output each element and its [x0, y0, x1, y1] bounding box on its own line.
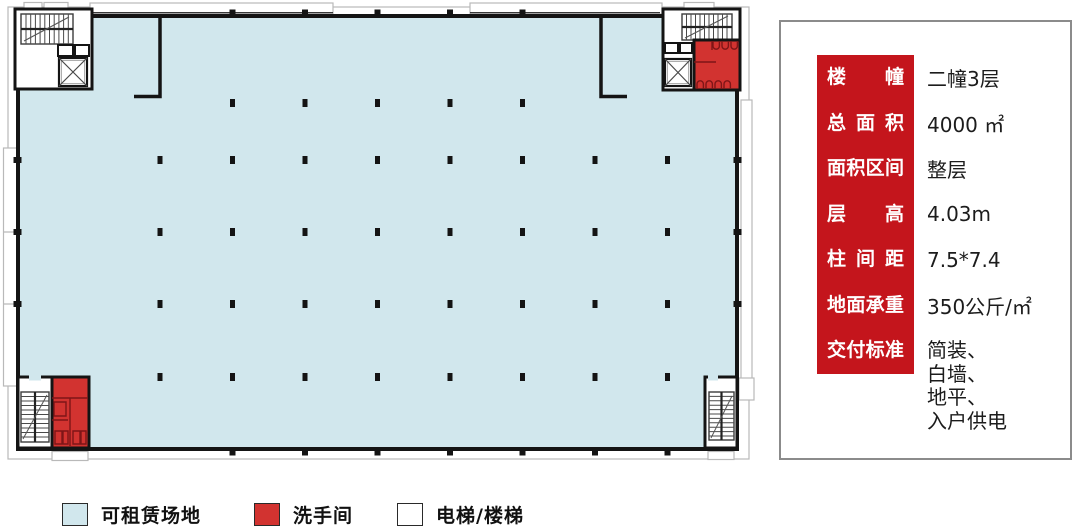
label-column-spacing: 柱间距	[817, 237, 914, 283]
info-panel: 楼幢 总面积 面积区间 层高 柱间距 地面承重 交付标准 二幢3层 4000 ㎡…	[779, 20, 1072, 460]
service-box	[58, 45, 73, 56]
legend-label: 可租赁场地	[101, 501, 201, 528]
value-delivery-standard: 简装、 白墙、 地平、 入户供电	[927, 328, 1067, 433]
elevator-top-left-icon	[59, 58, 87, 86]
restroom-top-right	[694, 40, 740, 90]
elevator-top-right-icon	[665, 59, 691, 86]
label-delivery-standard: 交付标准	[817, 328, 914, 374]
value-column-spacing: 7.5*7.4	[927, 237, 1067, 283]
door-gap	[708, 374, 718, 381]
core-bottom-right	[705, 374, 737, 449]
bottom-left-ledge	[52, 452, 88, 461]
label-area-range: 面积区间	[817, 146, 914, 192]
label-building: 楼幢	[817, 55, 914, 101]
info-panel-label-column: 楼幢 总面积 面积区间 层高 柱间距 地面承重 交付标准	[817, 55, 914, 374]
staircase-bottom-left-icon	[21, 392, 49, 442]
restroom-swatch	[254, 503, 280, 526]
staircase-top-right-icon	[682, 14, 732, 40]
legend-label: 洗手间	[293, 501, 353, 528]
legend-label: 电梯/楼梯	[436, 501, 524, 528]
restroom-bottom-left	[52, 377, 89, 448]
legend-item-restroom: 洗手间	[254, 500, 353, 528]
service-box	[75, 45, 89, 56]
value-floor-load: 350公斤/㎡	[927, 283, 1067, 329]
right-lower-ledge	[739, 378, 754, 400]
info-panel-value-column: 二幢3层 4000 ㎡ 整层 4.03m 7.5*7.4 350公斤/㎡ 简装、…	[927, 55, 1067, 433]
value-total-area: 4000 ㎡	[927, 101, 1067, 147]
left-balcony-band	[4, 148, 18, 386]
legend-item-rentable: 可租赁场地	[62, 500, 201, 528]
label-floor-height: 层高	[817, 192, 914, 238]
core-bottom-left	[18, 374, 89, 449]
value-building: 二幢3层	[927, 55, 1067, 101]
page: 可租赁场地 洗手间 电梯/楼梯 楼幢 总面积 面积区间 层高 柱间距 地面承重 …	[0, 0, 1080, 529]
right-balcony-band	[741, 100, 752, 380]
service-box	[680, 43, 692, 53]
floor-plan	[0, 0, 760, 480]
value-area-range: 整层	[927, 146, 1067, 192]
service-box	[665, 43, 678, 53]
value-floor-height: 4.03m	[927, 192, 1067, 238]
door-gap	[29, 374, 41, 381]
staircase-top-left-icon	[21, 14, 73, 44]
elevator-stair-swatch	[397, 503, 423, 526]
rentable-area-swatch	[62, 503, 88, 526]
label-floor-load: 地面承重	[817, 283, 914, 329]
staircase-bottom-right-icon	[709, 392, 734, 440]
bottom-right-ledge	[708, 452, 734, 460]
label-total-area: 总面积	[817, 101, 914, 147]
legend-item-elevator-stair: 电梯/楼梯	[397, 500, 524, 528]
